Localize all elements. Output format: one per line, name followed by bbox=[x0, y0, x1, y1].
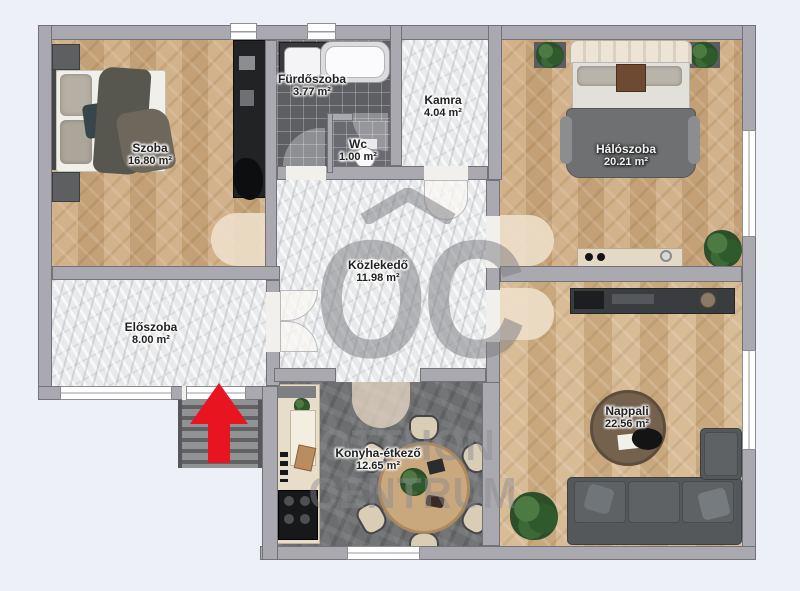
dresser-item bbox=[597, 253, 605, 261]
plant bbox=[510, 492, 558, 540]
toilet-bowl bbox=[355, 147, 375, 168]
bed-headboard bbox=[570, 40, 692, 64]
wall bbox=[390, 25, 402, 166]
window bbox=[230, 23, 257, 40]
tv-device bbox=[612, 294, 654, 304]
wall bbox=[488, 25, 502, 180]
dining-chair bbox=[409, 415, 439, 441]
plant bbox=[400, 468, 428, 496]
entrance-arrow bbox=[190, 383, 248, 463]
window bbox=[60, 386, 172, 400]
rug bbox=[590, 390, 666, 466]
sofa-cushion bbox=[628, 481, 680, 523]
wall bbox=[500, 266, 742, 282]
blanket bbox=[566, 108, 696, 178]
plant bbox=[536, 42, 564, 68]
bed-runner bbox=[616, 64, 646, 92]
room-eloszoba-floor bbox=[52, 280, 266, 386]
plant bbox=[704, 230, 742, 268]
room-kamra-floor bbox=[402, 40, 488, 166]
floor-plan: OC OTTHON CENTRUM Szoba 16.80 m² Fürdősz… bbox=[0, 0, 800, 591]
wardrobe bbox=[52, 172, 80, 202]
blanket-fold bbox=[688, 116, 700, 164]
wall bbox=[327, 113, 333, 173]
dresser-item bbox=[585, 253, 593, 261]
door-opening bbox=[266, 292, 280, 352]
wall bbox=[274, 368, 336, 382]
door-opening bbox=[286, 166, 326, 180]
wall bbox=[38, 25, 52, 400]
blanket-fold bbox=[560, 116, 572, 164]
wall bbox=[742, 25, 756, 560]
door-opening bbox=[486, 290, 500, 342]
door-opening bbox=[424, 166, 468, 180]
wall bbox=[265, 40, 277, 280]
window bbox=[742, 130, 756, 237]
wall bbox=[52, 266, 280, 280]
wall bbox=[482, 382, 500, 546]
door-arc-haloszoba bbox=[500, 215, 554, 266]
utensils bbox=[280, 452, 288, 482]
wall bbox=[260, 546, 756, 560]
wall bbox=[486, 180, 500, 390]
door-arc-szoba bbox=[211, 213, 265, 266]
wardrobe bbox=[52, 44, 80, 70]
kitchen-appliance bbox=[278, 386, 316, 398]
shelf-item bbox=[240, 90, 254, 106]
window bbox=[347, 546, 420, 560]
plant bbox=[690, 42, 718, 68]
mirror bbox=[660, 250, 672, 262]
bathtub-basin bbox=[325, 46, 385, 78]
window bbox=[307, 23, 336, 40]
burner bbox=[284, 496, 294, 506]
sofa-cushion bbox=[704, 432, 738, 476]
tv-device bbox=[574, 291, 604, 309]
sink bbox=[284, 47, 322, 77]
burner bbox=[300, 496, 310, 506]
wall bbox=[420, 368, 486, 382]
window bbox=[742, 350, 756, 450]
shelf-item bbox=[239, 56, 255, 70]
wall bbox=[262, 386, 278, 560]
burner bbox=[300, 514, 310, 524]
door-opening bbox=[486, 216, 500, 268]
speaker bbox=[700, 292, 716, 308]
door-arc-nappali bbox=[500, 288, 554, 340]
burner bbox=[284, 514, 294, 524]
